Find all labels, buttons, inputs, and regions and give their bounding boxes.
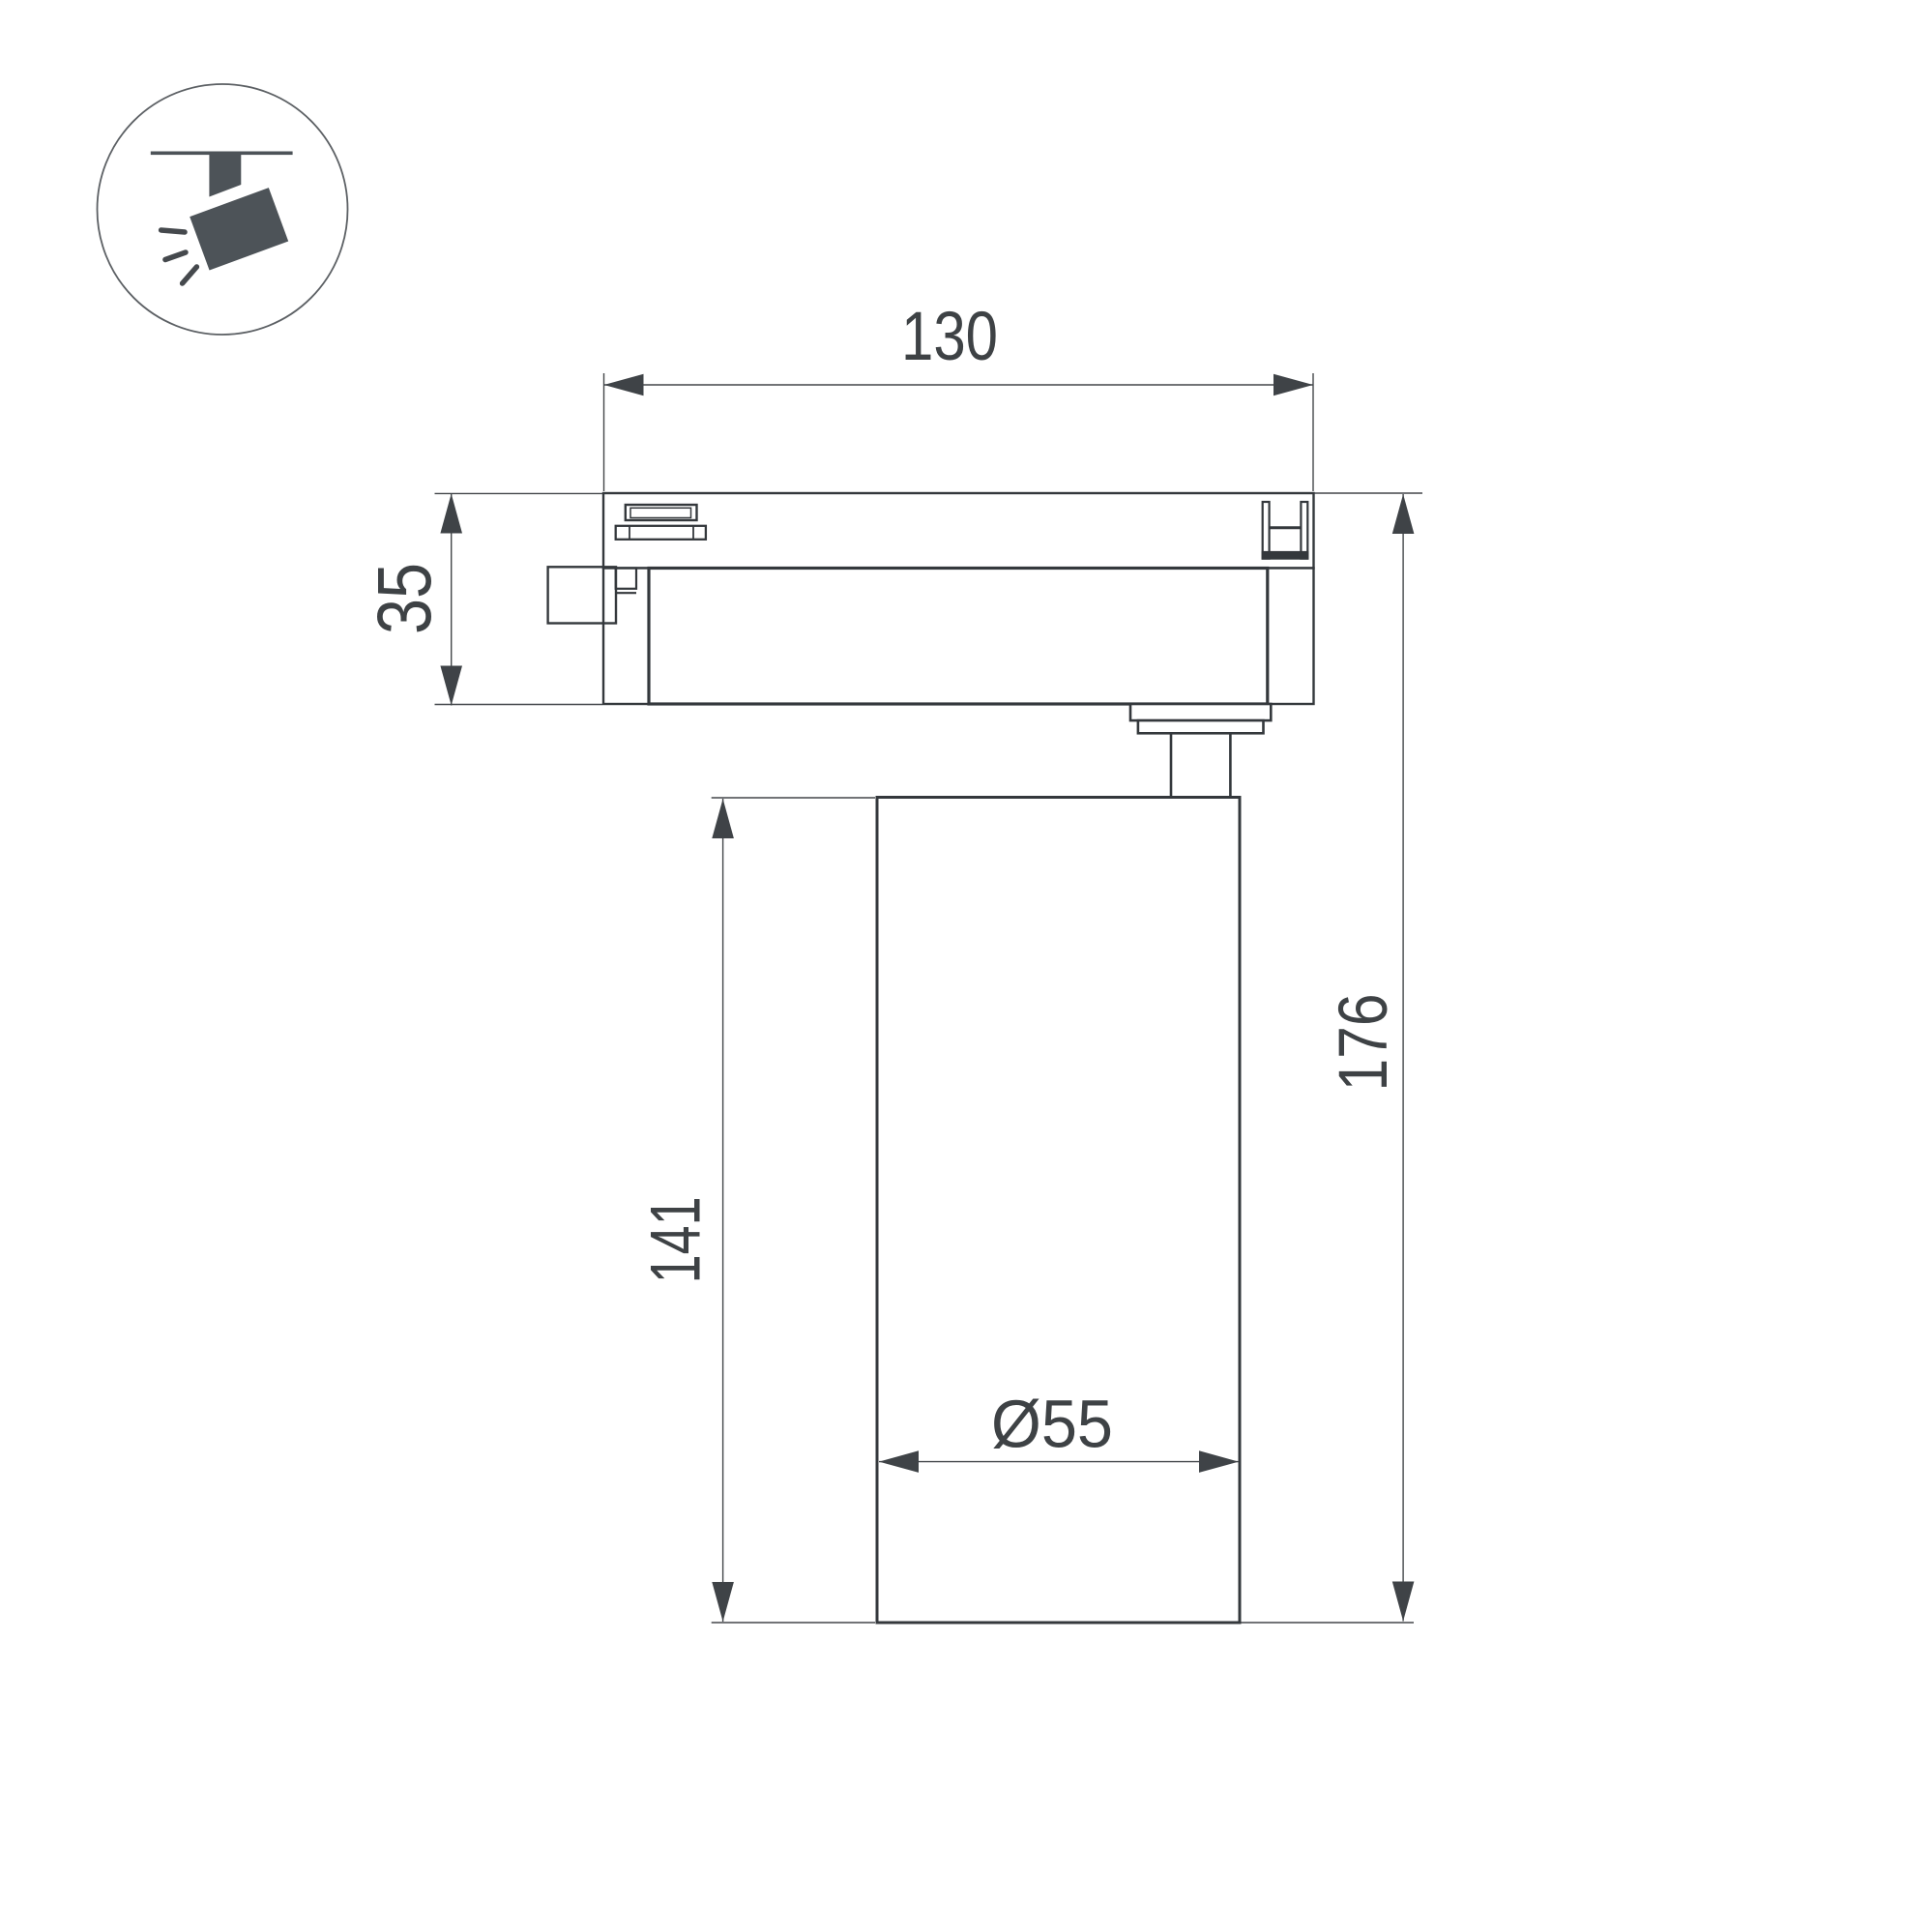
svg-text:35: 35 (362, 563, 447, 634)
svg-text:Ø55: Ø55 (991, 1386, 1113, 1461)
svg-text:130: 130 (901, 298, 998, 375)
svg-text:141: 141 (636, 1196, 715, 1283)
svg-text:176: 176 (1325, 994, 1402, 1092)
